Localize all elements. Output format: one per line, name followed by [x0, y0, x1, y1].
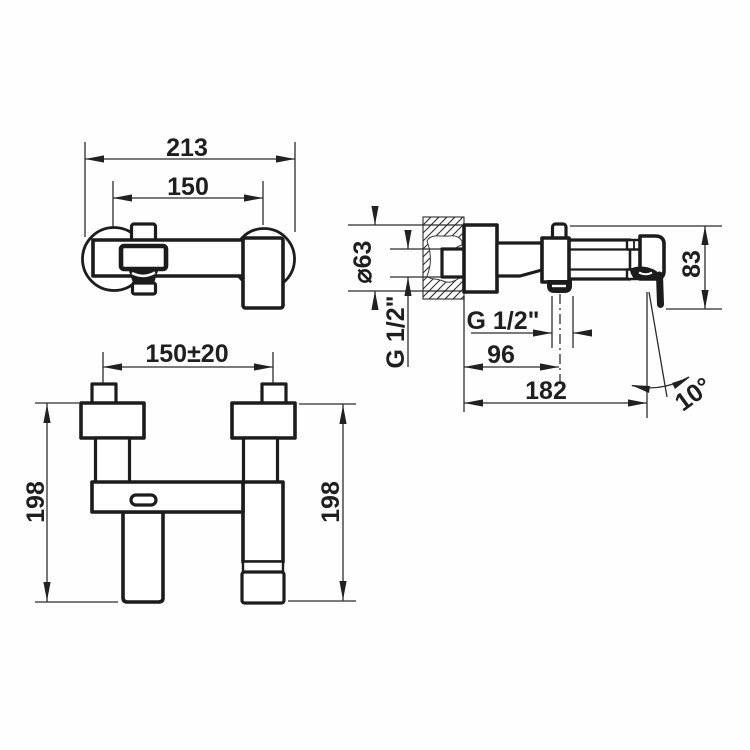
dim-outlet-distance-label: 96 [487, 341, 515, 369]
left-leg-column [96, 438, 130, 484]
mixer-body-profile [542, 238, 569, 282]
arrowhead [103, 363, 122, 370]
dim-height-right-label: 198 [317, 481, 345, 523]
left-leg-flange [81, 403, 144, 438]
arrowhead [540, 363, 559, 370]
hose-outlet-housing [121, 246, 166, 269]
technical-drawing-page: 213 150 [0, 0, 750, 750]
dim-outlet-thread-label: G 1/2" [467, 307, 540, 335]
dim-wall-thread-label: G 1/2" [382, 296, 410, 369]
arrowhead [628, 399, 647, 406]
arrowhead [371, 206, 378, 225]
lever-axis-line [649, 292, 667, 397]
dim-height-left-label: 198 [22, 481, 50, 523]
dim-hole-centers-label: 150 [167, 173, 209, 201]
left-inlet-stub [92, 384, 116, 404]
hose-nut [133, 283, 156, 294]
right-inlet-stub [262, 384, 286, 404]
front-view-shower-mixer: 213 150 [83, 134, 296, 308]
dim-overall-depth-label: 182 [525, 377, 567, 405]
arrowhead [464, 363, 483, 370]
right-lower-column [243, 482, 283, 562]
arrowhead [701, 226, 708, 245]
arrowhead [43, 582, 50, 601]
dim-body-height-label: 83 [678, 250, 706, 278]
arrowhead [631, 385, 650, 393]
arrowhead [339, 405, 346, 424]
column-end-cap [242, 572, 284, 603]
arrowhead [371, 291, 378, 310]
handle-lever [660, 275, 661, 305]
arrowhead [276, 155, 295, 162]
arrowhead [701, 290, 708, 309]
arrowhead [43, 404, 50, 423]
arrowhead [85, 155, 104, 162]
bath-mixer-body [92, 482, 243, 512]
spout-column [123, 512, 163, 602]
right-leg-flange [232, 403, 295, 438]
dim-handle-angle-label: 10° [670, 372, 717, 417]
arrowhead [404, 277, 411, 296]
arrowhead [404, 230, 411, 249]
mixer-body [93, 240, 244, 276]
flange-profile [464, 225, 497, 292]
arrowhead [339, 581, 346, 600]
dim-flange-diameter-label: ⌀63 [349, 241, 377, 284]
arrowhead [573, 329, 592, 336]
arrowhead [113, 194, 132, 201]
front-view-bath-mixer: 150±20 198 198 [22, 340, 356, 603]
right-leg-column [244, 438, 278, 484]
arrowhead [244, 194, 263, 201]
cartridge-housing [569, 240, 641, 279]
dim-overall-width-label: 213 [166, 134, 208, 162]
body-neck [497, 243, 542, 276]
body-slot [131, 495, 156, 505]
side-view-wall-section: ⌀63 G 1/2" [348, 176, 722, 418]
mixer-technical-drawing: 213 150 [0, 0, 750, 750]
mixer-handle [243, 238, 283, 308]
arrowhead [464, 399, 483, 406]
dim-inlet-centers-label: 150±20 [145, 340, 228, 368]
arrowhead [254, 363, 273, 370]
